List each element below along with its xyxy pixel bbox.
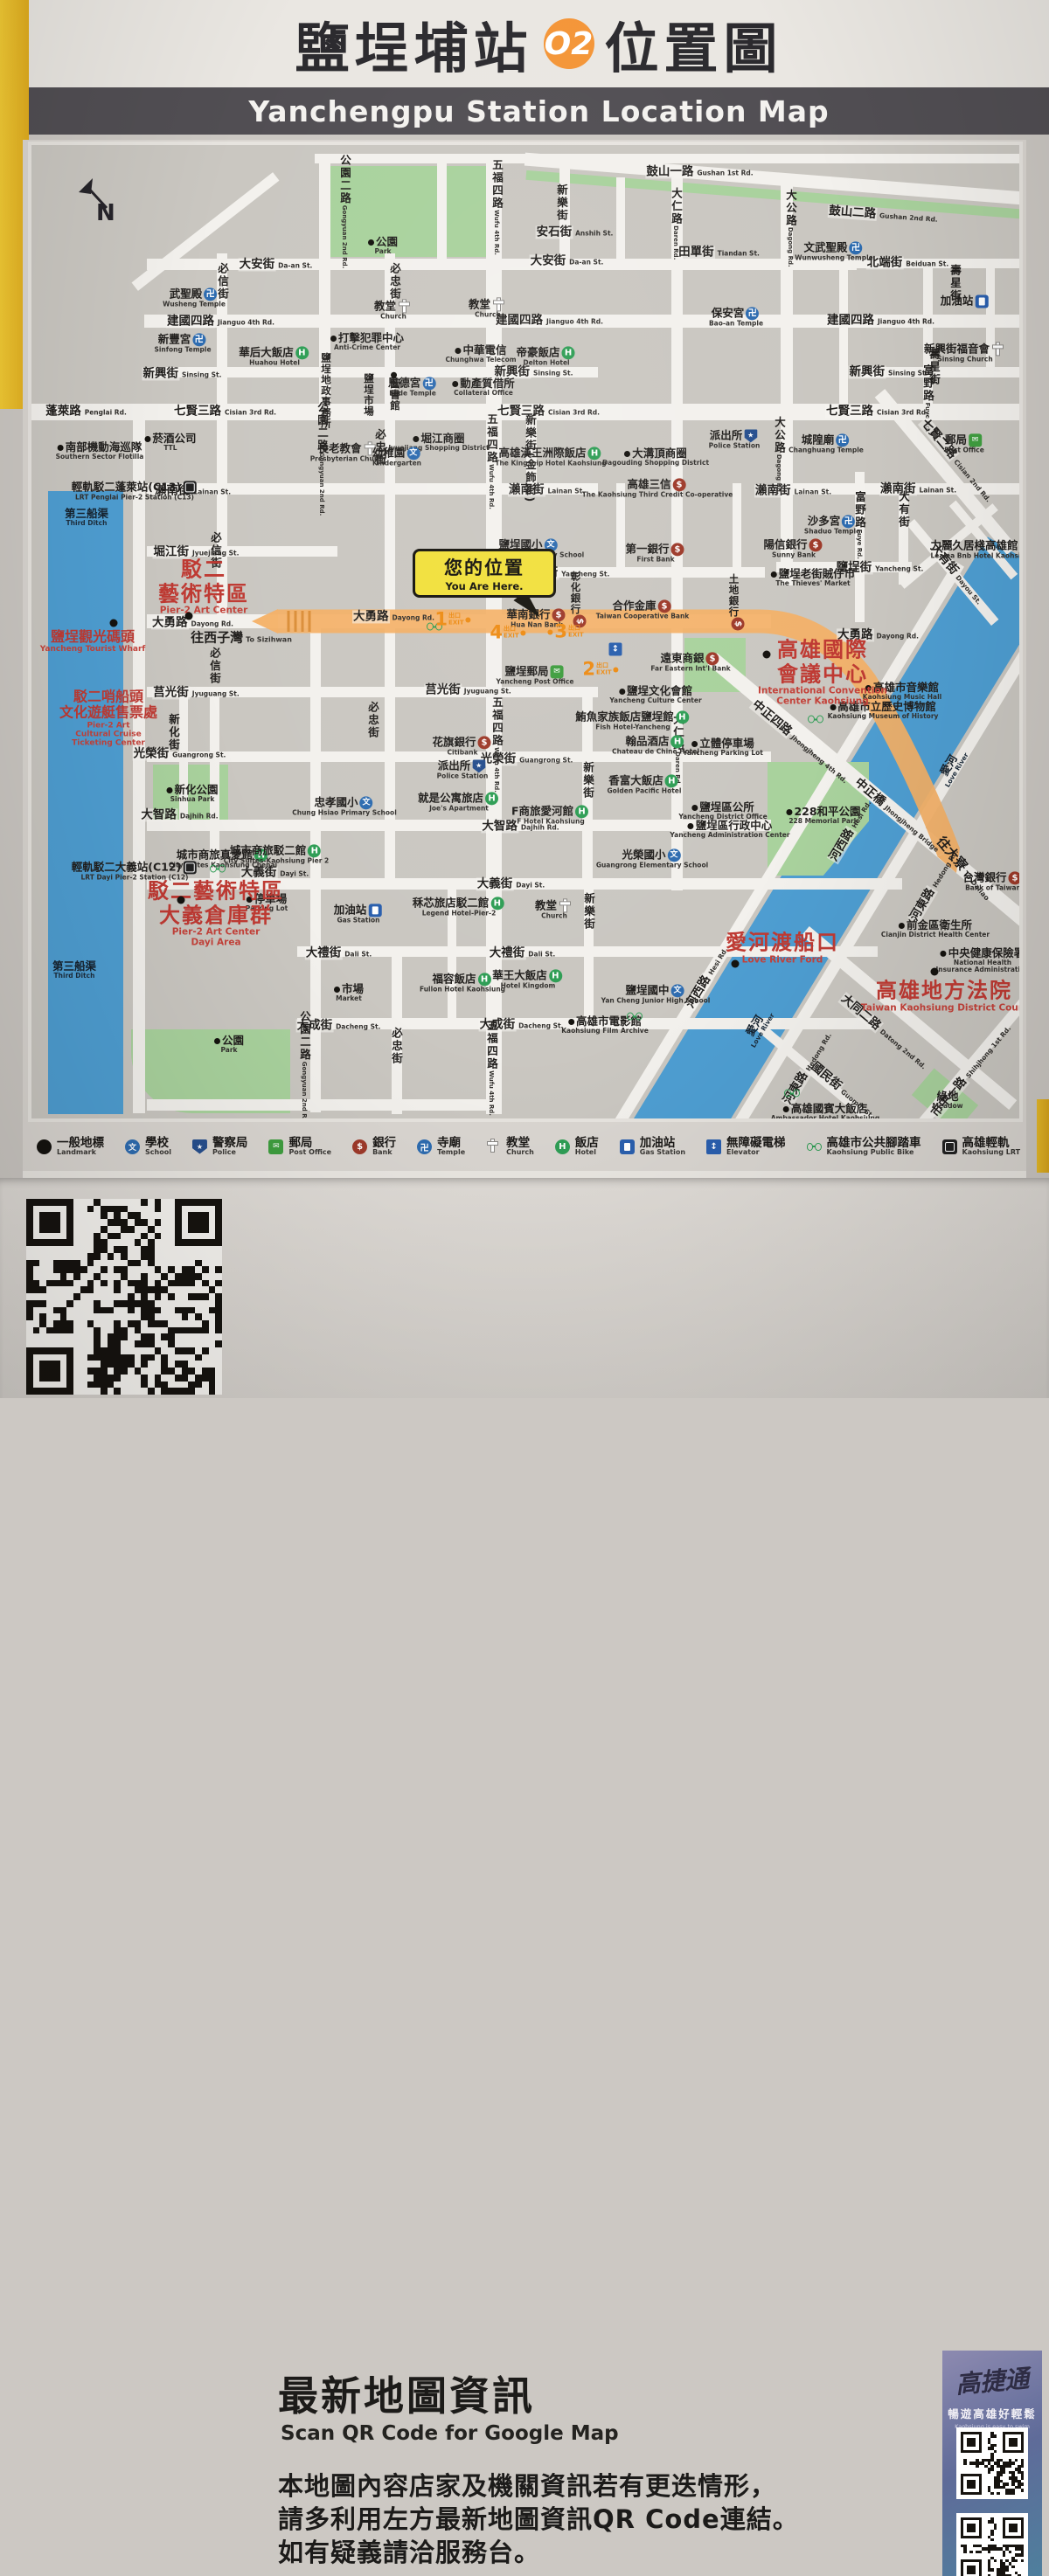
landmark-dot bbox=[763, 651, 771, 659]
legend-item: ★警察局Police bbox=[191, 1137, 248, 1157]
road-label: 安石街Anshih St. bbox=[536, 225, 614, 239]
poi-label: 彰化銀行$ bbox=[568, 571, 588, 628]
legend-item: 高雄市公共腳踏車Kaohsiung Public Bike bbox=[805, 1137, 921, 1157]
landmark-dot bbox=[931, 968, 939, 976]
bank-icon: $ bbox=[352, 1139, 367, 1154]
hotel-icon: H bbox=[490, 897, 504, 910]
station-map: 鼓山一路Gushan 1st Rd.鼓山二路Gushan 2nd Rd.大安街D… bbox=[31, 145, 1019, 1118]
road-label: 大義街Dayi St. bbox=[476, 877, 545, 890]
hotel-icon: H bbox=[562, 346, 575, 359]
ikaohsiung-card: 高捷通 暢遊高雄好輕鬆 Kaohsiung is easy to swim bbox=[942, 2351, 1042, 2576]
poi-label: 鹽埕國中文Yan Cheng Junior High School bbox=[601, 984, 711, 1004]
road-label: 鼓山一路Gushan 1st Rd. bbox=[645, 165, 753, 178]
poi-label: 輕軌駁二蓬萊站(C13)LRT Penglai Pier-2 Station (… bbox=[72, 481, 198, 501]
poi-label: 高雄漢王洲際飯店HThe Kingship Hotel Kaohsiung bbox=[495, 447, 606, 467]
poi-label: 大溝頂商圈Dagouding Shopping District bbox=[602, 447, 709, 467]
road-label: 大禮街Dali St. bbox=[489, 946, 555, 959]
exit-marker: 4出口EXIT bbox=[490, 624, 527, 642]
subtitle-bar: Yanchengpu Station Location Map bbox=[29, 87, 1049, 135]
road-label: 建國四路Jianguo 4th Rd. bbox=[495, 314, 603, 327]
poi-label: 幼稚園文Kindergarten bbox=[372, 447, 422, 467]
poi-label: 教堂Church bbox=[469, 298, 507, 318]
hotel-icon: H bbox=[295, 346, 309, 359]
road-label: 新樂街 bbox=[580, 761, 595, 800]
poi-label: 鹽埕文化會館Yancheng Culture Center bbox=[609, 685, 701, 704]
landmark-icon bbox=[37, 1139, 52, 1154]
police-icon: ★ bbox=[192, 1139, 207, 1154]
poi-label: 中華電信Chunghwa Telecom bbox=[445, 344, 516, 364]
bike-icon bbox=[784, 1087, 800, 1100]
hotel-icon: H bbox=[549, 969, 562, 982]
police-icon: ★ bbox=[472, 759, 485, 772]
poi-label: 加油站 bbox=[941, 295, 990, 308]
exit-marker: 2出口EXIT bbox=[582, 661, 620, 679]
temple-icon: 卍 bbox=[842, 515, 855, 528]
road-label: 瀨南街Lainan St. bbox=[508, 483, 585, 496]
bank-icon: $ bbox=[552, 608, 566, 621]
road-label: 公園二路Gongyuan 2nd Rd. bbox=[296, 1011, 312, 1118]
hotel-icon: H bbox=[575, 805, 588, 818]
notice-line: 如有疑義請洽服務台。 bbox=[278, 2536, 907, 2569]
road-label: 鼓山二路Gushan 2nd Rd. bbox=[828, 204, 939, 225]
poi-label: 就是公寓旅店HJoe's Apartment bbox=[418, 792, 500, 812]
road-label: 大公路Dagong Rd. bbox=[771, 416, 787, 494]
map-legend: 一般地標Landmark文學校School★警察局Police✉郵局Post O… bbox=[31, 1125, 1023, 1167]
poi-label: 鹽埕老街賊仔市The Thieves' Market bbox=[771, 568, 856, 587]
bank-icon: $ bbox=[731, 618, 744, 631]
poi-label: 新興街福音會Sinsing Church bbox=[924, 343, 1006, 363]
landmark-label: 高雄國際會議中心International ConventionCenter K… bbox=[758, 639, 887, 708]
legend-item: 文學校School bbox=[123, 1137, 171, 1157]
road-label: 大安街Da-an St. bbox=[530, 254, 604, 267]
water-label: 第三船渠Third Ditch bbox=[52, 960, 96, 980]
legend-item: ↕無障礙電梯Elevator bbox=[705, 1137, 786, 1157]
road-label: 建國四路Jianguo 4th Rd. bbox=[826, 314, 934, 327]
police-icon: ★ bbox=[744, 429, 757, 442]
road-label: 大智路Dajhih Rd. bbox=[140, 808, 218, 821]
landmark-label: 愛河渡船口Love River Ford bbox=[726, 931, 839, 965]
poi-label: 立體停車場Yancheng Parking Lot bbox=[683, 737, 763, 757]
church-icon bbox=[492, 298, 505, 311]
poi-label: 第一銀行$First Bank bbox=[625, 543, 685, 563]
poi-label: 公園Park bbox=[368, 236, 398, 255]
poi-label: 打擊犯罪中心Anti-Crime Center bbox=[330, 332, 404, 351]
station-title-en: Yanchengpu Station Location Map bbox=[248, 94, 829, 128]
gas-icon bbox=[975, 295, 988, 308]
bike-icon bbox=[808, 713, 823, 726]
road-label: 七賢三路Cisian 3rd Rd. bbox=[825, 405, 928, 418]
poi-label: 土地銀行$ bbox=[726, 574, 747, 631]
poi-label: 沙多宮卍Shaduo Temple bbox=[804, 515, 860, 535]
hotel-icon: H bbox=[308, 844, 321, 857]
poi-label: 力麗久居棧高雄館HLealea Bnb Hotel Kaohsiung bbox=[930, 539, 1019, 559]
poi-label: 高雄三信$The Kaohsiung Third Credit Co-opera… bbox=[582, 478, 733, 498]
legend-item: 加油站Gas Station bbox=[618, 1137, 685, 1157]
road-label: 必忠街 bbox=[386, 262, 402, 301]
location-map-title-zh: 位置圖 bbox=[605, 4, 783, 83]
landmark-label: 鹽埕觀光碼頭Yancheng Tourist Wharf bbox=[40, 629, 146, 654]
qr-section-subtitle: Scan QR Code for Google Map bbox=[281, 2422, 619, 2445]
poi-label: 郵局✉Post Office bbox=[944, 433, 984, 454]
landmark-dot bbox=[110, 620, 118, 627]
poi-label: 前金區衛生所Cianjin District Health Center bbox=[881, 919, 990, 938]
school-icon: 文 bbox=[125, 1139, 140, 1154]
poi-label: 香富大飯店HGolden Pacific Hotel bbox=[608, 774, 682, 794]
map-notice-text: 本地圖內容店家及機關資訊若有更迭情形，請多利用左方最新地圖資訊QR Code連結… bbox=[278, 2469, 907, 2569]
qr-section-title: 最新地圖資訊 bbox=[278, 2365, 535, 2422]
poi-label: 加油站Gas Station bbox=[334, 904, 384, 924]
road-label: 田單街Tiandan St. bbox=[677, 246, 760, 259]
direction-label: 往西子灣To Sizihwan bbox=[191, 631, 292, 646]
poi-label: 武聖殿卍Wusheng Temple bbox=[163, 287, 226, 308]
poi-label: 秝芯旅店駁二館HLegend Hotel-Pier-2 bbox=[413, 897, 506, 917]
post-icon: ✉ bbox=[268, 1139, 283, 1154]
card-qr-code bbox=[956, 2513, 1028, 2576]
google-map-qr-code bbox=[26, 1199, 222, 1395]
poi-label: 忠孝國小文Chung Hsiao Primary School bbox=[292, 796, 397, 816]
road-label: 莒光街Jyuguang St. bbox=[152, 686, 239, 699]
road-label: 大有街 bbox=[895, 490, 911, 529]
temple-icon: 卍 bbox=[746, 307, 759, 320]
water-label: 愛河Love River bbox=[934, 745, 970, 789]
poi-label: 鮪魚家族飯店鹽埕館HFish Hotel-Yancheng bbox=[575, 710, 691, 731]
map-poi-icon bbox=[625, 1008, 644, 1024]
station-code-badge: O2 bbox=[544, 18, 594, 69]
poi-label: 花旗銀行$Citibank bbox=[432, 736, 492, 756]
poi-label: 高雄國賓大飯店Ambassador Hotel Kaohsiung bbox=[771, 1103, 880, 1118]
poi-label: 保安宮卍Bao-an Temple bbox=[709, 307, 763, 327]
poi-label: 鹽埕區公所Yancheng District Office bbox=[678, 801, 767, 821]
poi-label: 合作金庫$Taiwan Cooperative Bank bbox=[596, 599, 690, 620]
temple-icon: 卍 bbox=[204, 287, 217, 301]
hotel-icon: H bbox=[588, 447, 601, 460]
poi-label: 華王大飯店HHotel Kingdom bbox=[492, 969, 564, 989]
poi-label: 菸酒公司TTL bbox=[144, 433, 196, 452]
you-are-here-callout: 您的位置 You Are Here. bbox=[413, 549, 556, 598]
poi-label: 鹽埕郵局✉Yancheng Post Office bbox=[497, 665, 574, 685]
hotel-icon: H bbox=[665, 774, 678, 787]
map-poi-icon: ↕ bbox=[608, 641, 624, 657]
notice-line: 請多利用左方最新地圖資訊QR Code連結。 bbox=[278, 2503, 907, 2536]
road-label: 七賢三路Cisian 3rd Rd. bbox=[173, 405, 276, 418]
poi-label: 遠東商銀$Far Eastern Int'l Bank bbox=[650, 652, 730, 672]
elevator-icon: ↕ bbox=[706, 1139, 721, 1154]
water-label: 第三船渠Third Ditch bbox=[65, 508, 108, 527]
road-label: 必忠街 bbox=[388, 1027, 404, 1065]
hotel-icon: H bbox=[478, 973, 491, 986]
road-label: 大勇路Dayong Rd. bbox=[151, 616, 233, 629]
you-are-here-zh: 您的位置 bbox=[419, 554, 550, 580]
lrt-icon bbox=[942, 1139, 957, 1154]
bank-icon: $ bbox=[673, 478, 686, 491]
bank-icon: $ bbox=[706, 652, 719, 665]
landmark-label: 駁二藝術特區大義倉庫群Pier-2 Art CenterDayi Area bbox=[148, 880, 284, 949]
poi-label: 新化公園Sinhua Park bbox=[166, 784, 218, 803]
bike-icon bbox=[807, 1139, 822, 1154]
gas-icon bbox=[368, 904, 381, 917]
road-label: 新樂街 bbox=[553, 184, 569, 222]
temple-icon: 卍 bbox=[422, 377, 435, 390]
card-brand: 高捷通 bbox=[942, 2358, 1042, 2402]
road-label: 大禮街Dali St. bbox=[305, 946, 372, 959]
legend-item: 教堂Church bbox=[484, 1137, 534, 1157]
school-icon: 文 bbox=[360, 796, 373, 809]
legend-item: 一般地標Landmark bbox=[35, 1137, 104, 1157]
post-icon: ✉ bbox=[551, 665, 564, 678]
bike-icon bbox=[627, 1010, 643, 1023]
temple-icon: 卍 bbox=[417, 1139, 432, 1154]
bank-icon: $ bbox=[1009, 871, 1019, 884]
landmark-label: 高雄地方法院Taiwan Kaohsiung District Court bbox=[861, 979, 1019, 1013]
station-title-zh: 鹽埕埔站 bbox=[295, 4, 532, 83]
map-label-layer: 鼓山一路Gushan 1st Rd.鼓山二路Gushan 2nd Rd.大安街D… bbox=[31, 145, 1019, 1118]
temple-icon: 卍 bbox=[850, 241, 863, 254]
road-label: 莒光街Jyuguang St. bbox=[424, 683, 511, 696]
road-label: 大安街Da-an St. bbox=[239, 258, 313, 271]
poi-label: 鹽埕區行政中心Yancheng Administration Center bbox=[670, 820, 789, 839]
title-bar: 鹽埕埔站 O2 位置圖 bbox=[29, 0, 1049, 87]
poi-label: 派出所★Police Station bbox=[437, 759, 489, 779]
road-label: 新興街Sinsing St. bbox=[142, 367, 221, 380]
hotel-icon: H bbox=[676, 710, 689, 724]
bank-icon: $ bbox=[478, 736, 491, 749]
poi-label: 文武聖殿卍Wunwusheng Temple bbox=[795, 241, 872, 261]
road-label: 瀨南街Lainan St. bbox=[754, 484, 831, 497]
school-icon: 文 bbox=[671, 984, 684, 997]
poi-label: 公園Park bbox=[214, 1035, 244, 1054]
landmark-label: 駁二藝術特區Pier-2 Art Center bbox=[158, 558, 249, 617]
lrt-icon bbox=[183, 861, 196, 874]
road-label: 七賢三路Cisian 3rd Rd. bbox=[497, 405, 600, 418]
poi-label: 動產質借所Collateral Office bbox=[452, 377, 515, 397]
exit-marker: 1出口EXIT bbox=[434, 611, 472, 629]
hotel-icon: H bbox=[485, 792, 498, 805]
road-label: 新樂街 bbox=[580, 892, 596, 931]
road-label: 瀨南街Lainan St. bbox=[879, 482, 956, 495]
poi-label: 圖書館 bbox=[387, 372, 403, 412]
church-icon bbox=[991, 343, 1004, 356]
poi-label: 市場Market bbox=[334, 983, 364, 1002]
bank-icon: $ bbox=[658, 599, 671, 613]
poi-label: 派出所★Police Station bbox=[709, 429, 761, 449]
map-poi-icon bbox=[806, 710, 825, 727]
water-label: 愛河Love River bbox=[740, 1006, 776, 1049]
north-letter: N bbox=[96, 200, 115, 226]
school-icon: 文 bbox=[406, 447, 420, 460]
landmark-dot bbox=[185, 613, 193, 620]
road-label: 大勇路Dayong Rd. bbox=[352, 610, 434, 623]
card-qr-code bbox=[956, 2427, 1028, 2499]
hotel-icon: H bbox=[555, 1139, 570, 1154]
poi-label: 教堂Church bbox=[374, 300, 413, 320]
poi-label: 鹽埕地政事務所 bbox=[318, 352, 334, 429]
poi-label: 城市商旅駁二館HCity Suites-Kaohsiung Pier 2 bbox=[224, 844, 329, 864]
legend-item: ✉郵局Post Office bbox=[267, 1137, 331, 1157]
temple-icon: 卍 bbox=[836, 433, 849, 447]
poi-label: 鹽埕市場 bbox=[361, 373, 377, 417]
panel-divider bbox=[23, 1171, 1026, 1178]
bank-icon: $ bbox=[671, 543, 684, 556]
poi-label: 光榮國小文Guangrong Elementary School bbox=[596, 848, 708, 869]
you-are-here-en: You Are Here. bbox=[419, 580, 550, 592]
poi-label: F商旅愛河館HF Hotel Kaohsiung bbox=[511, 805, 590, 825]
landmark-label: 駁二哨船頭文化遊艇售票處Pier-2 ArtCultural CruiseTic… bbox=[59, 689, 157, 747]
road-label: 北端街Beiduan St. bbox=[866, 256, 948, 269]
card-slogan-zh: 暢遊高雄好輕鬆 bbox=[942, 2405, 1042, 2421]
legend-item: H飯店Hotel bbox=[553, 1137, 599, 1157]
poi-label: 中央健康保險署National HealthInsurance Administ… bbox=[935, 947, 1019, 973]
poi-label: 南部機動海巡隊Southern Sector Flotilla bbox=[56, 441, 144, 460]
landmark-dot bbox=[732, 960, 740, 968]
church-icon bbox=[559, 899, 572, 912]
sign-frame-yellow-edge bbox=[1037, 1099, 1049, 1173]
notice-line: 本地圖內容店家及機關資訊若有更迭情形， bbox=[278, 2469, 907, 2503]
road-label: 大仁路Daren Rd. bbox=[668, 188, 684, 260]
road-label: 五福四路Wufu 4th Rd. bbox=[483, 1020, 499, 1116]
poi-label: 新豐宮卍Sinfong Temple bbox=[154, 333, 211, 353]
poi-label: 台灣銀行$Bank of Taiwan bbox=[962, 871, 1019, 891]
road-label: 新化街 bbox=[165, 713, 181, 751]
legend-item: $銀行Bank bbox=[351, 1137, 396, 1157]
road-label: 必忠街 bbox=[365, 701, 380, 739]
poi-label: 帝豪飯店HDelton Hotel bbox=[516, 346, 576, 366]
church-icon bbox=[398, 300, 411, 313]
poi-label: 綠地Meadow bbox=[932, 1091, 962, 1110]
temple-icon: 卍 bbox=[192, 333, 205, 346]
north-arrow-icon: N bbox=[77, 178, 126, 227]
poi-label: 城隍廟卍Changhuang Temple bbox=[788, 433, 864, 454]
church-icon bbox=[486, 1139, 501, 1154]
station-sign-photo: { "header":{"title_zh_left":"鹽埕埔站","badg… bbox=[0, 0, 1049, 1398]
poi-label: 華后大飯店HHuahou Hotel bbox=[239, 346, 310, 366]
road-label: 蓬萊路Penglai Rd. bbox=[45, 405, 127, 418]
post-icon: ✉ bbox=[969, 433, 982, 447]
elevator-icon: ↕ bbox=[609, 643, 622, 656]
bank-icon: $ bbox=[809, 538, 823, 551]
legend-item: 卍寺廟Temple bbox=[415, 1137, 465, 1157]
road-label: 公園二路Gongyuan 2nd Rd. bbox=[337, 155, 352, 269]
road-label: 必信街 bbox=[206, 647, 222, 685]
poi-label: 教堂Church bbox=[535, 899, 573, 919]
legend-item: 高雄輕軌Kaohsiung LRT bbox=[941, 1137, 1021, 1157]
bike-icon bbox=[210, 862, 226, 876]
map-poi-icon bbox=[782, 1084, 802, 1101]
poi-label: 陽信銀行$Sunny Bank bbox=[763, 538, 823, 558]
poi-label: 228和平公園228 Memorial Park bbox=[786, 806, 860, 825]
map-poi-icon bbox=[208, 860, 227, 876]
road-label: 五福四路Wufu 4th Rd. bbox=[489, 159, 504, 255]
road-label: 新興街Sinsing St. bbox=[848, 365, 927, 378]
lrt-icon bbox=[183, 481, 196, 494]
landmark-dot bbox=[177, 897, 185, 904]
school-icon: 文 bbox=[668, 848, 681, 862]
road-label: 建國四路Jianguo 4th Rd. bbox=[166, 315, 274, 328]
exit-marker: 3出口EXIT bbox=[545, 623, 583, 641]
gas-icon bbox=[620, 1139, 635, 1154]
